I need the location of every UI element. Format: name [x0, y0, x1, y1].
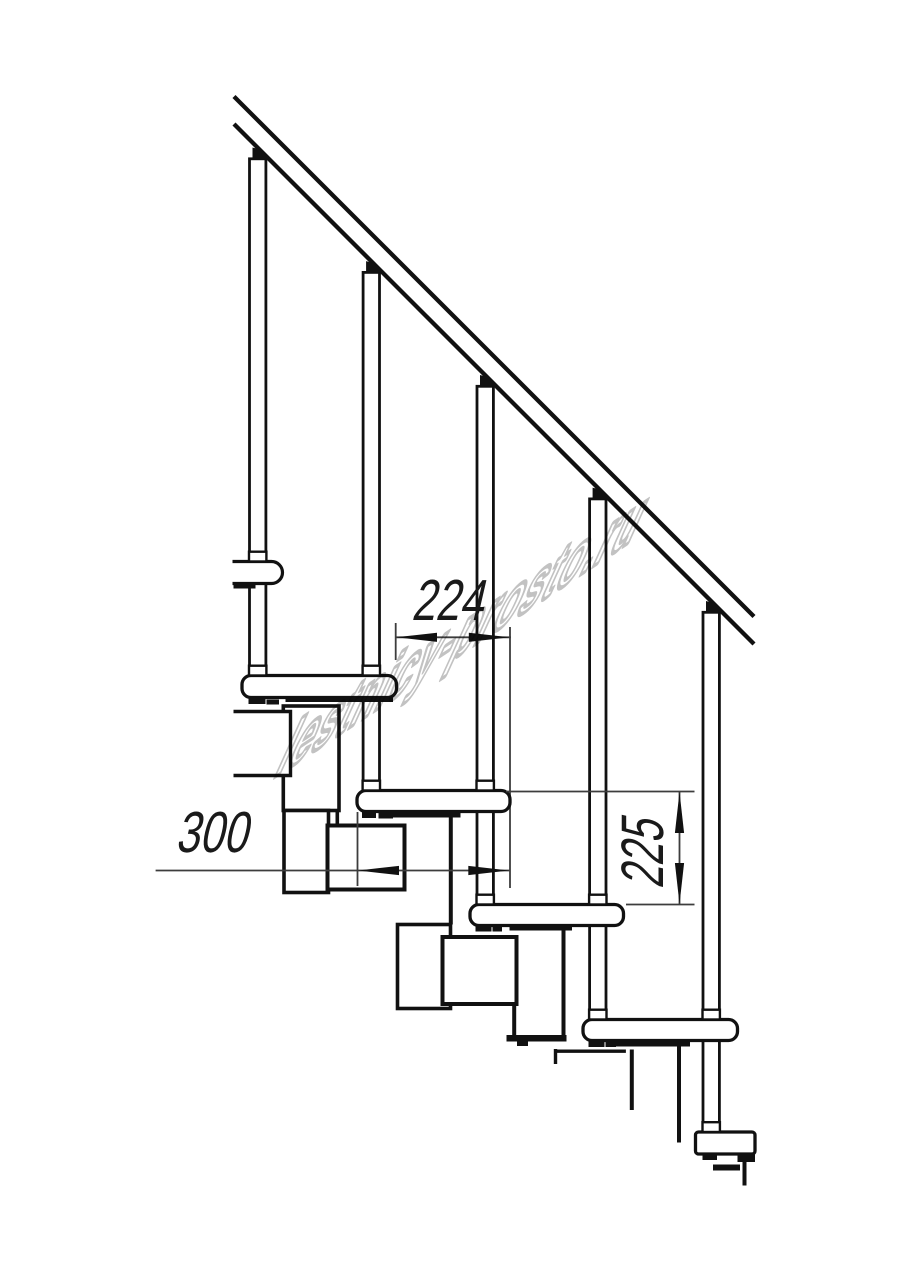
- svg-text:300: 300: [172, 799, 259, 864]
